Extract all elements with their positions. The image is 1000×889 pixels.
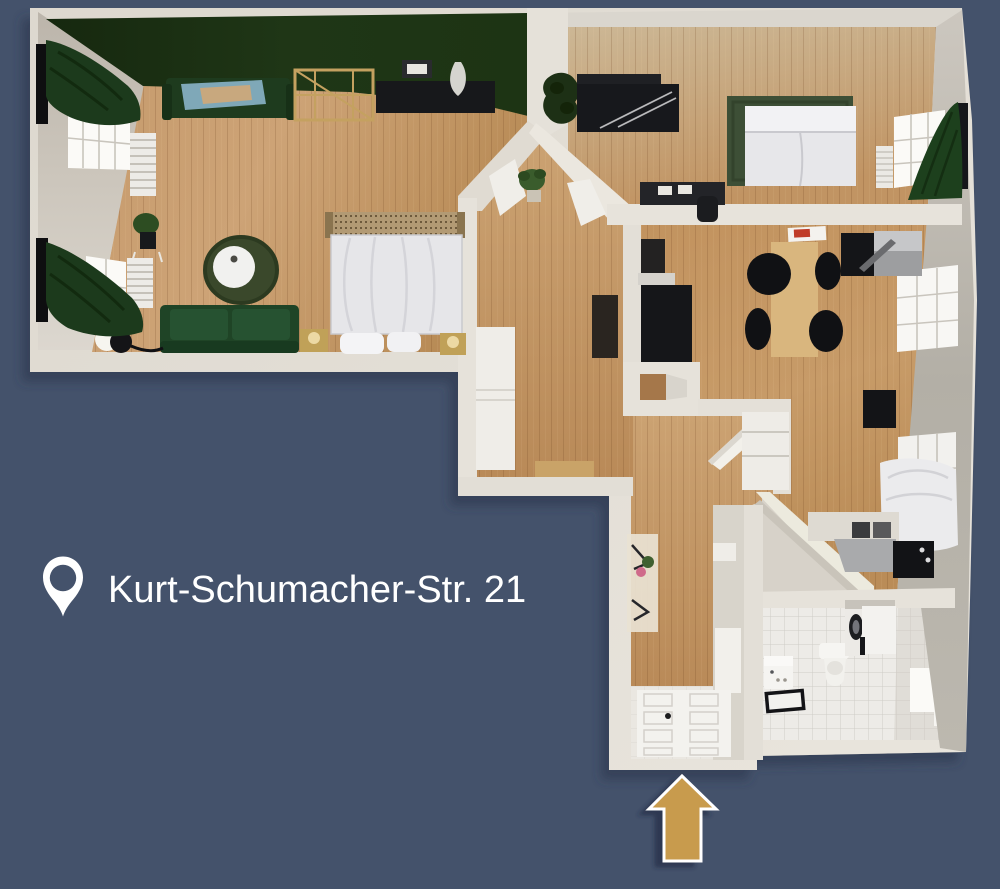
svg-text:Kurt-Schumacher-Str. 21: Kurt-Schumacher-Str. 21 <box>108 569 526 611</box>
